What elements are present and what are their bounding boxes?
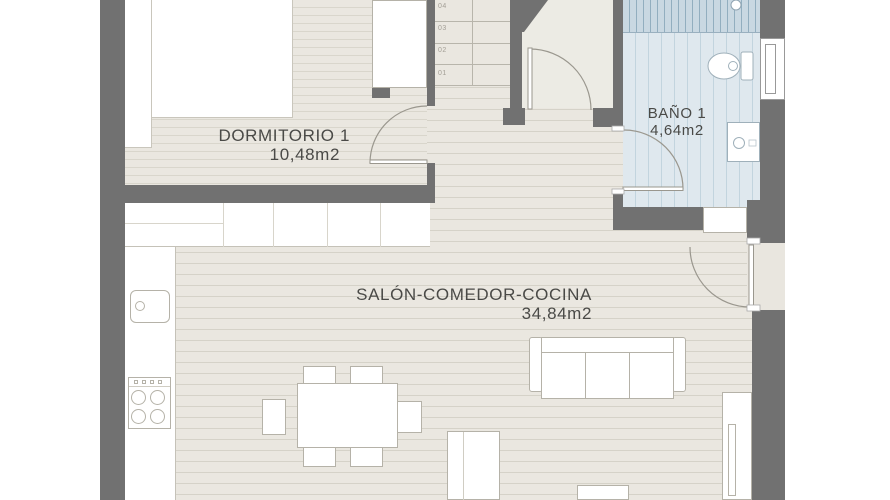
door-jamb (747, 238, 760, 244)
door-jamb (747, 305, 760, 311)
bedroom-area: 10,48m2 (180, 145, 340, 164)
bathroom-area: 4,64m2 (622, 123, 732, 140)
floor-plan: 04 03 02 01 (0, 0, 890, 500)
bedroom-label-block: DORMITORIO 1 10,48m2 (180, 126, 350, 164)
bathroom-door-leaf (623, 187, 683, 191)
door-jamb (612, 189, 624, 194)
bedroom-name: DORMITORIO 1 (180, 126, 350, 145)
living-label-block: SALÓN-COMEDOR-COCINA 34,84m2 (340, 285, 592, 323)
shower-drain-icon (731, 0, 741, 10)
bathroom-name: BAÑO 1 (622, 106, 732, 123)
living-area: 34,84m2 (340, 304, 592, 323)
bathroom-label-block: BAÑO 1 4,64m2 (622, 106, 732, 140)
bedroom-door-leaf (370, 160, 427, 164)
entrance-door-leaf (749, 245, 754, 308)
bathroom-sink-basin (734, 138, 745, 149)
toilet-tank (741, 52, 753, 80)
bedroom-door-arc (370, 106, 427, 163)
entrance-door-arc (690, 247, 750, 307)
wall-hall-diagonal (510, 0, 548, 32)
hall-door-leaf (528, 48, 532, 109)
bathroom-faucet (749, 140, 756, 146)
kitchen-sink-basin (136, 302, 145, 311)
hall-door-arc (530, 49, 591, 110)
plan-overlay (0, 0, 890, 500)
toilet-flush (729, 62, 738, 71)
living-name: SALÓN-COMEDOR-COCINA (340, 285, 592, 304)
